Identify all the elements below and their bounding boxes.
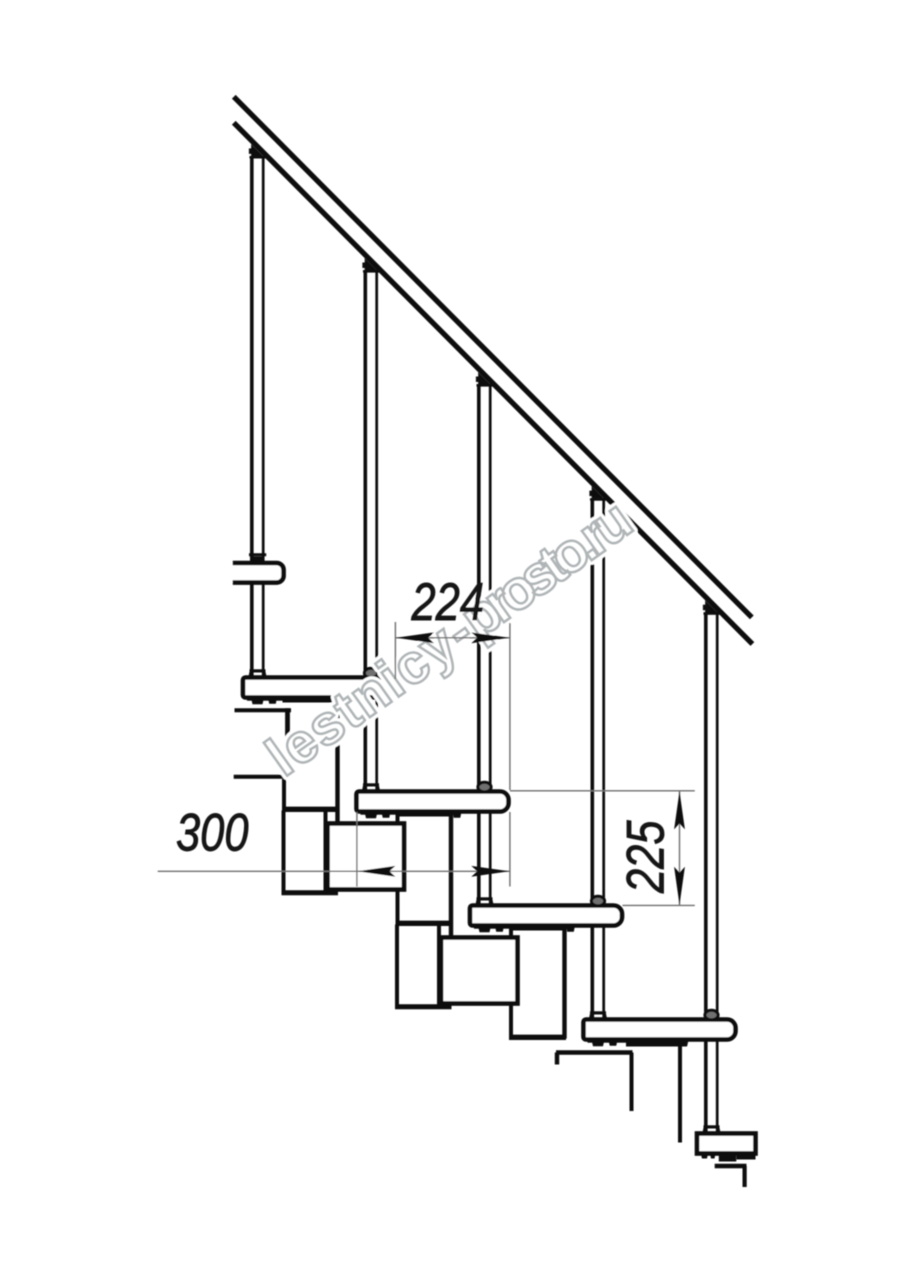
svg-text:300: 300 (176, 803, 249, 862)
svg-text:225: 225 (616, 820, 675, 894)
svg-text:224: 224 (411, 573, 484, 632)
